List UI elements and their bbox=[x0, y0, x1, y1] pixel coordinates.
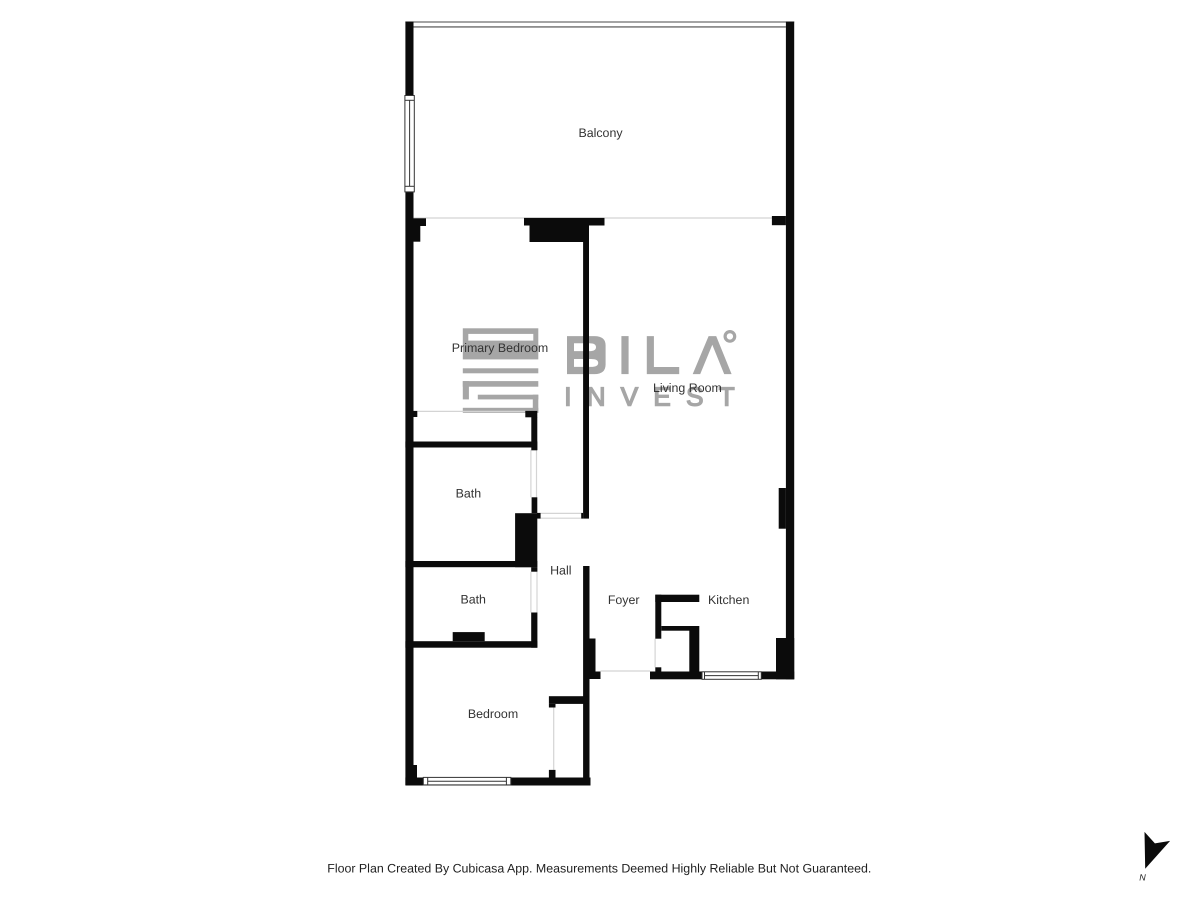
svg-text:Kitchen: Kitchen bbox=[708, 593, 749, 607]
svg-text:Living Room: Living Room bbox=[653, 381, 722, 395]
svg-text:Bath: Bath bbox=[460, 593, 486, 607]
svg-text:Floor Plan Created By Cubicasa: Floor Plan Created By Cubicasa App. Meas… bbox=[327, 861, 871, 875]
svg-text:N: N bbox=[1139, 872, 1146, 882]
svg-text:Bath: Bath bbox=[456, 486, 482, 500]
svg-text:Foyer: Foyer bbox=[608, 593, 640, 607]
svg-text:Balcony: Balcony bbox=[578, 126, 623, 140]
svg-text:Bedroom: Bedroom bbox=[468, 707, 518, 721]
svg-text:Primary Bedroom: Primary Bedroom bbox=[452, 341, 548, 355]
svg-text:Hall: Hall bbox=[550, 564, 571, 578]
